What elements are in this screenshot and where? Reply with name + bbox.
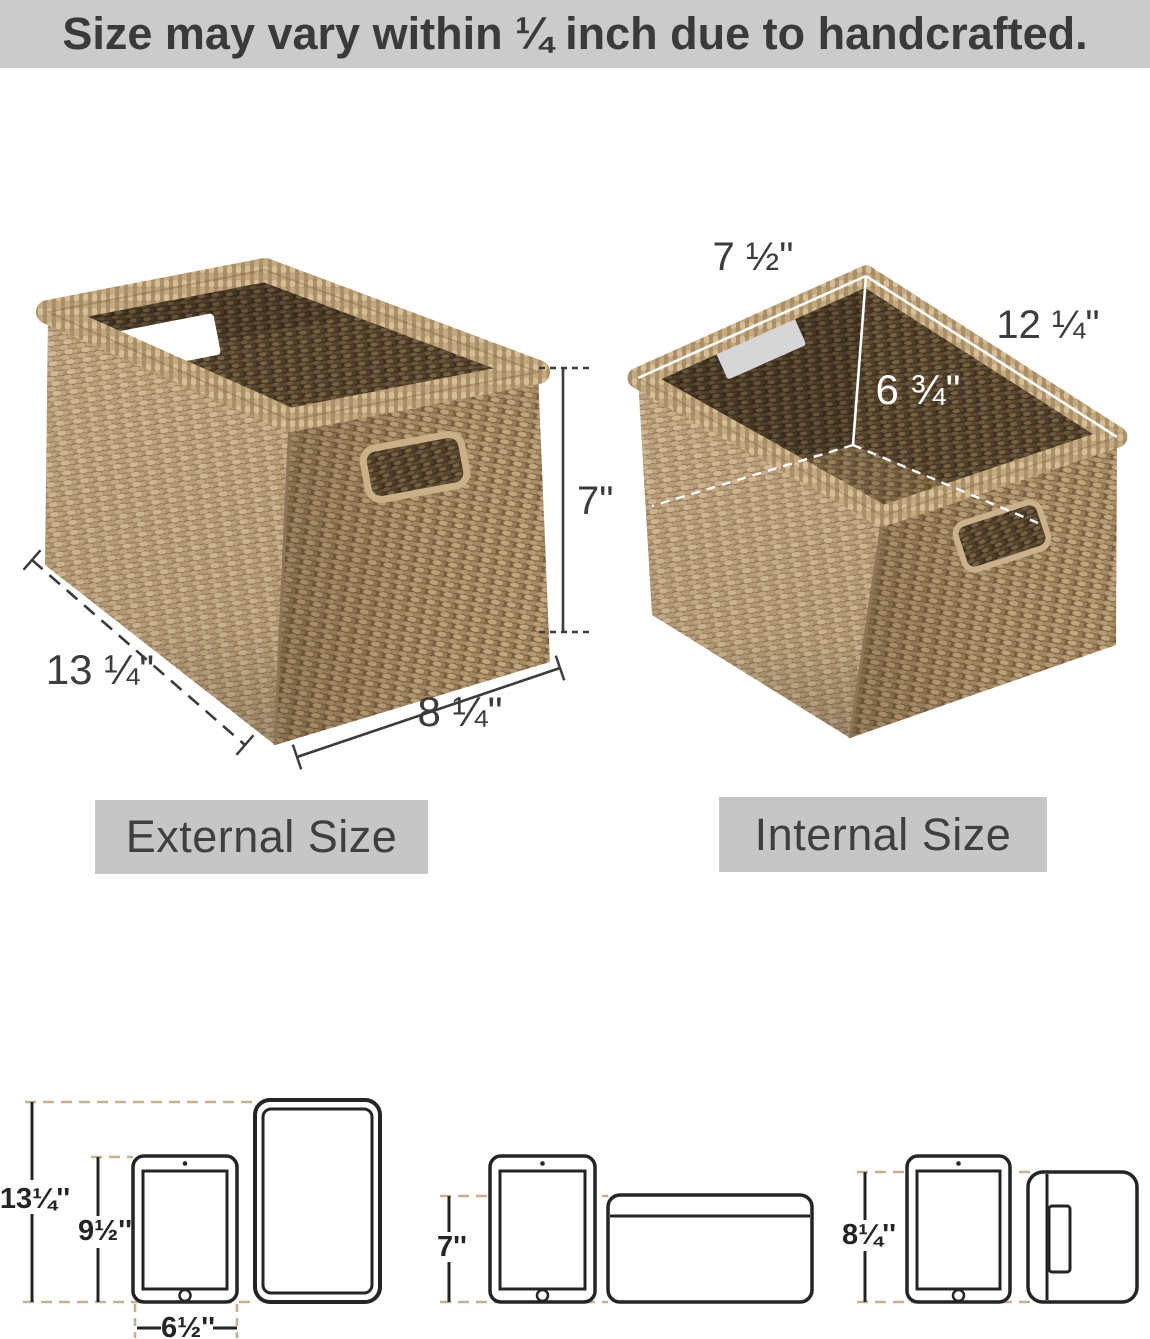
tablet-camera-dot bbox=[956, 1161, 961, 1166]
external-size-label: External Size bbox=[95, 800, 428, 874]
fit-diagram-middle: 7'' bbox=[437, 1156, 812, 1302]
basket-side-handle bbox=[1049, 1206, 1070, 1272]
fit-left-tablet-width-label: 6½'' bbox=[161, 1312, 215, 1339]
fit-diagram-right: 8¼'' bbox=[842, 1156, 1137, 1302]
external-height-label: 7" bbox=[577, 479, 613, 523]
fit-diagram-left: 13¼'' 9½'' bbox=[0, 1100, 380, 1339]
internal-length-label: 12 ¼" bbox=[996, 303, 1099, 347]
basket-side-view-icon bbox=[1028, 1172, 1137, 1302]
fit-middle-height-label: 7'' bbox=[437, 1231, 467, 1263]
tablet-middle-icon bbox=[490, 1156, 595, 1302]
fit-left-tablet-height-label: 9½'' bbox=[78, 1215, 132, 1247]
tablet-small-icon bbox=[133, 1156, 237, 1302]
tablet-right-icon bbox=[907, 1156, 1010, 1302]
external-basket-photo: 13 ¼" 8 ¼" 7" bbox=[24, 270, 614, 769]
external-length-label: 13 ¼" bbox=[46, 646, 154, 693]
internal-basket-photo: 7 ½" 12 ¼" 6 ¾" bbox=[638, 235, 1117, 738]
product-dimension-infographic: Size may vary within ¼ inch due to handc… bbox=[0, 0, 1150, 1339]
internal-height-label: 6 ¾" bbox=[876, 366, 961, 413]
tablet-large-icon bbox=[255, 1100, 380, 1302]
fit-right-height-label: 8¼'' bbox=[842, 1219, 896, 1251]
internal-width-label: 7 ½" bbox=[713, 235, 794, 279]
tablet-camera-dot bbox=[540, 1161, 545, 1166]
scene-graphics: 13 ¼" 8 ¼" 7" bbox=[0, 0, 1150, 1339]
storage-box-side-icon bbox=[608, 1195, 812, 1302]
internal-size-label: Internal Size bbox=[719, 797, 1047, 872]
tablet-camera-dot bbox=[183, 1161, 188, 1166]
external-basket-short-face-shade bbox=[275, 372, 550, 745]
external-depth-label: 8 ¼" bbox=[418, 688, 503, 735]
fit-left-overall-height-label: 13¼'' bbox=[0, 1183, 70, 1215]
